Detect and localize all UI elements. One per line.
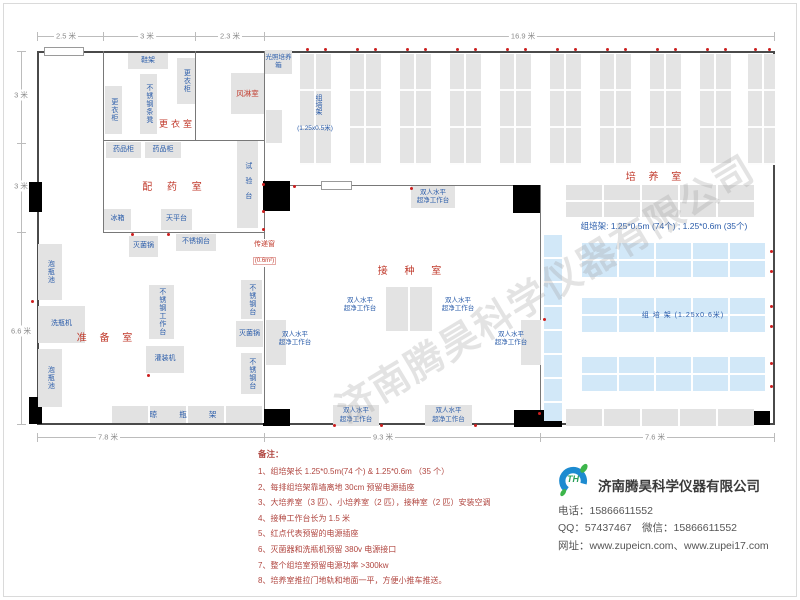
power-outlet-dot <box>262 210 265 213</box>
floor-plan-canvas: 2.5 米 3 米 2.3 米 16.9 米 3 米 3 米 6.6 米 7.8… <box>0 0 800 600</box>
note-item: 3、大培养室（3 匹）、小培养室（2 匹），接种室（2 匹）安装空调 <box>258 497 548 508</box>
wall <box>264 51 265 425</box>
power-outlet-dot <box>324 48 327 51</box>
company-website: 网址：www.zupeicn.com、www.zupei17.com <box>558 538 769 553</box>
blue-rack <box>582 243 765 278</box>
power-outlet-dot <box>167 233 170 236</box>
power-outlet-dot <box>770 362 773 365</box>
power-outlet-dot <box>293 185 296 188</box>
power-outlet-dot <box>624 48 627 51</box>
locker-right: 更衣柜 <box>177 58 195 104</box>
clean-bench-label: 双人水平 超净工作台 <box>434 297 482 314</box>
power-outlet-dot <box>770 325 773 328</box>
power-outlet-dot <box>31 300 34 303</box>
dim-tick <box>264 433 265 442</box>
culture-rack <box>650 54 681 165</box>
dim-tick <box>264 32 265 41</box>
power-outlet-dot <box>262 183 265 186</box>
power-outlet-dot <box>770 385 773 388</box>
drying-rack: 晾 瓶 架 <box>112 406 264 423</box>
dim-tick <box>17 424 26 425</box>
company-logo: TH <box>556 462 592 498</box>
power-outlet-dot <box>474 48 477 51</box>
rack-size-label: (1.25x0.5米) <box>284 125 346 133</box>
dim-bottom-1: 7.8 米 <box>96 432 120 443</box>
dim-left-2: 3 米 <box>12 181 30 192</box>
door-block <box>263 409 290 426</box>
soak-pool: 泡瓶池 <box>38 244 62 300</box>
blue-rack-label: 组 培 架 (1.25x0.6米) <box>608 311 758 320</box>
steel-table: 不锈钢台 <box>176 234 216 251</box>
power-outlet-dot <box>306 48 309 51</box>
power-outlet-dot <box>410 187 413 190</box>
dim-tick <box>540 433 541 442</box>
dim-bottom-3: 7.6 米 <box>643 432 667 443</box>
pass-window-name: 传递窗 <box>244 239 285 249</box>
power-outlet-dot <box>424 48 427 51</box>
bottom-rack <box>566 409 754 426</box>
dim-line-left <box>21 51 22 425</box>
light-incubator: 光照培养箱 <box>265 50 292 74</box>
door-block <box>752 411 770 425</box>
power-outlet-dot <box>606 48 609 51</box>
blue-rack <box>582 357 765 392</box>
dim-tick <box>774 433 775 442</box>
medicine-cabinet: 药品柜 <box>106 142 141 158</box>
medicine-cabinet: 药品柜 <box>145 142 181 158</box>
steel-workbench: 不锈钢工作台 <box>149 285 174 339</box>
sterilizer: 灭菌锅 <box>236 321 263 347</box>
door-symbol <box>321 181 352 190</box>
dim-tick <box>17 143 26 144</box>
company-phone: 电话：15866611552 <box>558 503 653 518</box>
dim-tick <box>37 32 38 41</box>
power-outlet-dot <box>356 48 359 51</box>
power-outlet-dot <box>506 48 509 51</box>
power-outlet-dot <box>674 48 677 51</box>
test-bench: 试验台 <box>237 141 258 228</box>
power-outlet-dot <box>656 48 659 51</box>
company-qq-wechat: QQ：57437467 微信：15866611552 <box>558 520 737 535</box>
rack-count-note: 组培架: 1.25*0.5m (74个) ; 1.25*0.6m (35个) <box>563 221 765 232</box>
power-outlet-dot <box>543 318 546 321</box>
note-item: 2、每排组培架靠墙离地 30cm 预留电源插座 <box>258 482 548 493</box>
power-outlet-dot <box>406 48 409 51</box>
power-outlet-dot <box>724 48 727 51</box>
clean-bench <box>386 287 408 331</box>
power-outlet-dot <box>456 48 459 51</box>
culture-rack <box>748 54 775 165</box>
culture-rack <box>350 54 381 165</box>
window-symbol <box>44 47 84 56</box>
dim-tick <box>17 51 26 52</box>
power-outlet-dot <box>131 233 134 236</box>
power-outlet-dot <box>768 48 771 51</box>
power-outlet-dot <box>574 48 577 51</box>
power-outlet-dot <box>380 424 383 427</box>
dim-left-1: 3 米 <box>12 90 30 101</box>
dim-tick <box>17 232 26 233</box>
company-name: 济南腾昊科学仪器有限公司 <box>598 475 760 495</box>
power-outlet-dot <box>754 48 757 51</box>
room-label-dispensing: 配 药 室 <box>138 178 212 193</box>
wall <box>540 185 541 425</box>
dim-tick <box>103 32 104 41</box>
dim-top-1: 2.5 米 <box>54 31 78 42</box>
logo-letters: TH <box>567 474 579 484</box>
wall <box>103 51 104 232</box>
dim-top-2: 3 米 <box>138 31 156 42</box>
notes-section: 备注： 1、组培架长 1.25*0.5m(74 个) & 1.25*0.6m （… <box>258 448 548 591</box>
dim-top-4: 16.9 米 <box>509 31 537 42</box>
power-outlet-dot <box>333 424 336 427</box>
blue-rack-vertical <box>544 235 562 421</box>
pass-window-size: (0.6m²) <box>253 257 276 265</box>
note-item: 5、红点代表预留的电源插座 <box>258 528 548 539</box>
dim-tick <box>774 32 775 41</box>
door-block <box>29 182 42 212</box>
room-label-prep: 准 备 室 <box>76 329 138 344</box>
culture-rack <box>500 54 531 165</box>
note-item: 4、接种工作台长为 1.5 米 <box>258 513 548 524</box>
steel-table: 不锈钢台 <box>241 280 262 319</box>
room-label-culture: 培 养 室 <box>624 168 688 183</box>
power-outlet-dot <box>262 228 265 231</box>
fridge: 冰箱 <box>104 209 131 230</box>
dim-tick <box>37 433 38 442</box>
soak-pool: 泡瓶池 <box>38 349 62 407</box>
room-label-inoculation: 接 种 室 <box>371 262 455 277</box>
culture-rack-horizontal <box>566 185 754 217</box>
steel-table: 不锈钢台 <box>241 353 262 394</box>
power-outlet-dot <box>524 48 527 51</box>
power-outlet-dot <box>147 374 150 377</box>
clean-bench: 双人水平 超净工作台 <box>411 186 455 208</box>
power-outlet-dot <box>556 48 559 51</box>
culture-rack <box>450 54 481 165</box>
air-shower-room: 风淋室 <box>231 73 264 114</box>
door-block <box>263 181 290 211</box>
power-outlet-dot <box>770 250 773 253</box>
rack-label: 组培架 <box>307 84 323 124</box>
balance-table: 天平台 <box>161 209 192 230</box>
note-item: 1、组培架长 1.25*0.5m(74 个) & 1.25*0.6m （35 个… <box>258 466 548 477</box>
dim-left-3: 6.6 米 <box>9 326 33 337</box>
room-label-dressing: 更衣室 <box>146 117 208 130</box>
filling-machine: 灌装机 <box>146 346 184 373</box>
power-outlet-dot <box>706 48 709 51</box>
power-outlet-dot <box>770 305 773 308</box>
note-item: 6、灭菌器和洗瓶机预留 380v 电源接口 <box>258 544 548 555</box>
clean-bench-label: 双人水平 超净工作台 <box>336 297 384 314</box>
clean-bench: 双人水平 超净工作台 <box>425 405 472 426</box>
pass-window: 传递窗 (0.6m²) <box>244 239 285 267</box>
culture-rack <box>700 54 731 165</box>
locker-left: 更衣柜 <box>105 86 122 134</box>
clean-bench: 双人水平 超净工作台 <box>333 405 379 426</box>
equipment-box <box>266 110 282 143</box>
power-outlet-dot <box>538 412 541 415</box>
power-outlet-dot <box>770 270 773 273</box>
power-outlet-dot <box>374 48 377 51</box>
dim-tick <box>195 32 196 41</box>
shoe-rack: 鞋架 <box>128 53 168 69</box>
culture-rack <box>600 54 631 165</box>
dim-bottom-2: 9.3 米 <box>371 432 395 443</box>
clean-bench <box>410 287 432 331</box>
wall <box>264 185 541 186</box>
clean-bench-label: 双人水平 超净工作台 <box>268 331 322 348</box>
sterilizer: 灭菌锅 <box>129 236 158 257</box>
door-block <box>513 185 540 213</box>
notes-title: 备注： <box>258 448 548 460</box>
power-outlet-dot <box>474 424 477 427</box>
dim-top-3: 2.3 米 <box>218 31 242 42</box>
wall <box>103 232 265 233</box>
culture-rack <box>400 54 431 165</box>
clean-bench-label: 双人水平 超净工作台 <box>484 331 538 348</box>
culture-rack <box>550 54 581 165</box>
note-item: 7、整个组培室预留电源功率 >300kw <box>258 560 548 571</box>
note-item: 8、培养室推拉门地轨和地面一平，方便小推车推送。 <box>258 575 548 586</box>
